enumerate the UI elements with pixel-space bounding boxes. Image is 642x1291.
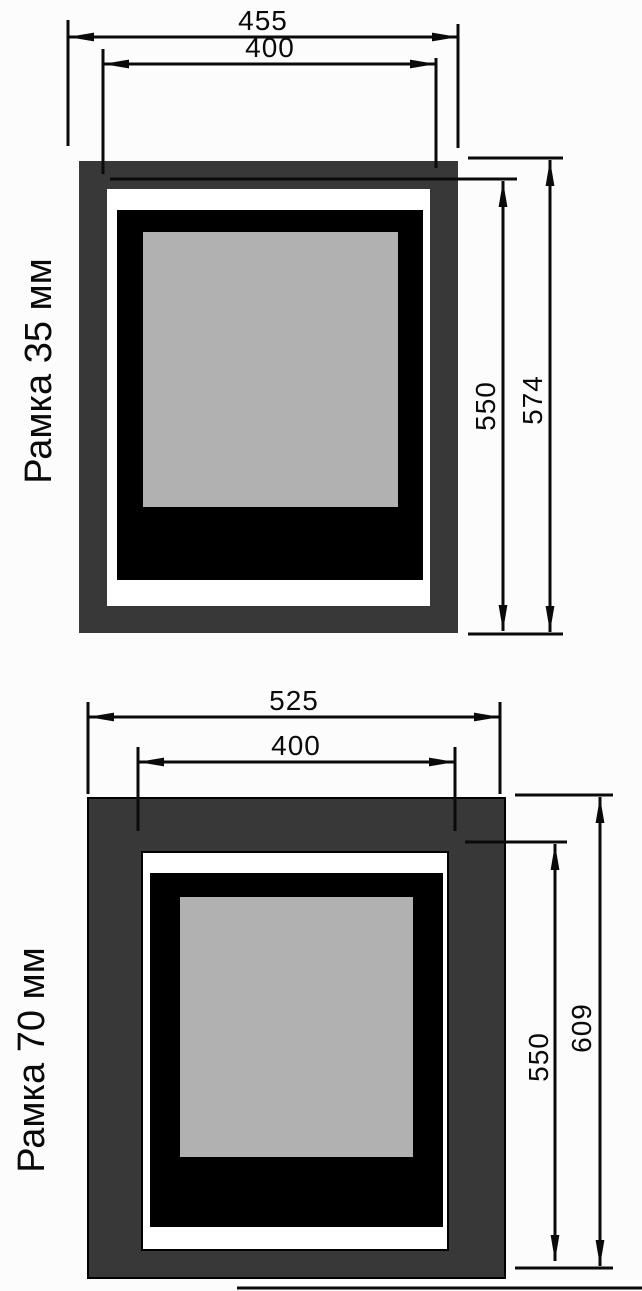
- frame35-dim-400-label: 400: [245, 32, 295, 63]
- frame35-dim-574-label: 574: [517, 375, 548, 425]
- frame70-label: Рамка 70 мм: [11, 947, 53, 1173]
- frames-technical-drawing: Рамка 35 мм 455 400 550 574 Рамка 70 мм: [0, 0, 642, 1291]
- frame70-dim-550-label: 550: [523, 1032, 554, 1082]
- frame70-dim-609-label: 609: [566, 1003, 597, 1053]
- frame35-photo: [143, 232, 398, 507]
- frame35-dim-550-label: 550: [470, 381, 501, 431]
- frame70-photo: [180, 897, 413, 1157]
- diagram-frame-70: Рамка 70 мм 525 400 550 609: [11, 685, 642, 1288]
- diagram-frame-35: Рамка 35 мм 455 400 550 574: [18, 5, 563, 634]
- frame35-label: Рамка 35 мм: [18, 258, 60, 484]
- frame70-dim-525-label: 525: [269, 685, 319, 716]
- frame70-dim-400-label: 400: [271, 730, 321, 761]
